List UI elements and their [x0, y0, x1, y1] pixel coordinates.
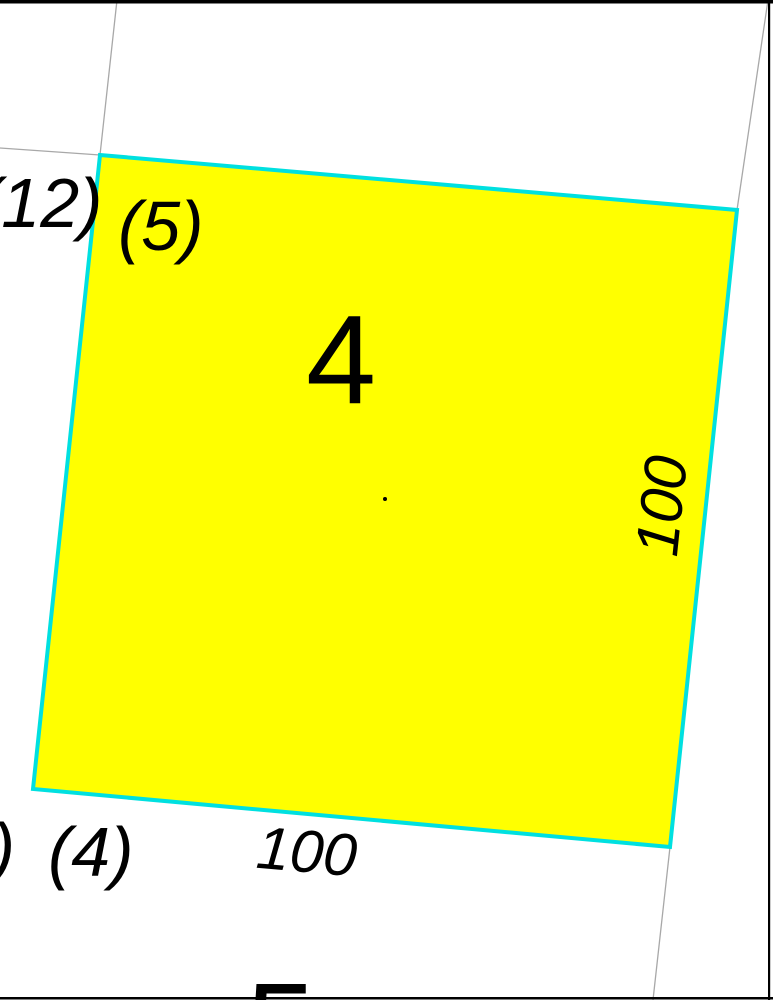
adjacent-parcel-number-label: 5 [246, 957, 316, 1000]
map-frame-top [0, 0, 773, 4]
parcel-centroid-dot [383, 497, 387, 501]
vertex-label-5: (5) [118, 187, 204, 265]
parcel-number-label: 4 [306, 289, 376, 430]
vertex-label-12: (12) [0, 164, 102, 242]
vertex-label-4: (4) [48, 813, 134, 891]
cadastral-map: (12) (5) ) (4) 4 100 100 5 [0, 0, 773, 1000]
map-frame-right [768, 0, 770, 1000]
dimension-label-bottom: 100 [254, 814, 360, 889]
map-frame-bottom [0, 997, 773, 1000]
dimension-label-right: 100 [623, 453, 700, 560]
vertex-label-clipped-paren: ) [0, 809, 15, 887]
map-svg: (12) (5) ) (4) 4 100 100 5 [0, 0, 773, 1000]
